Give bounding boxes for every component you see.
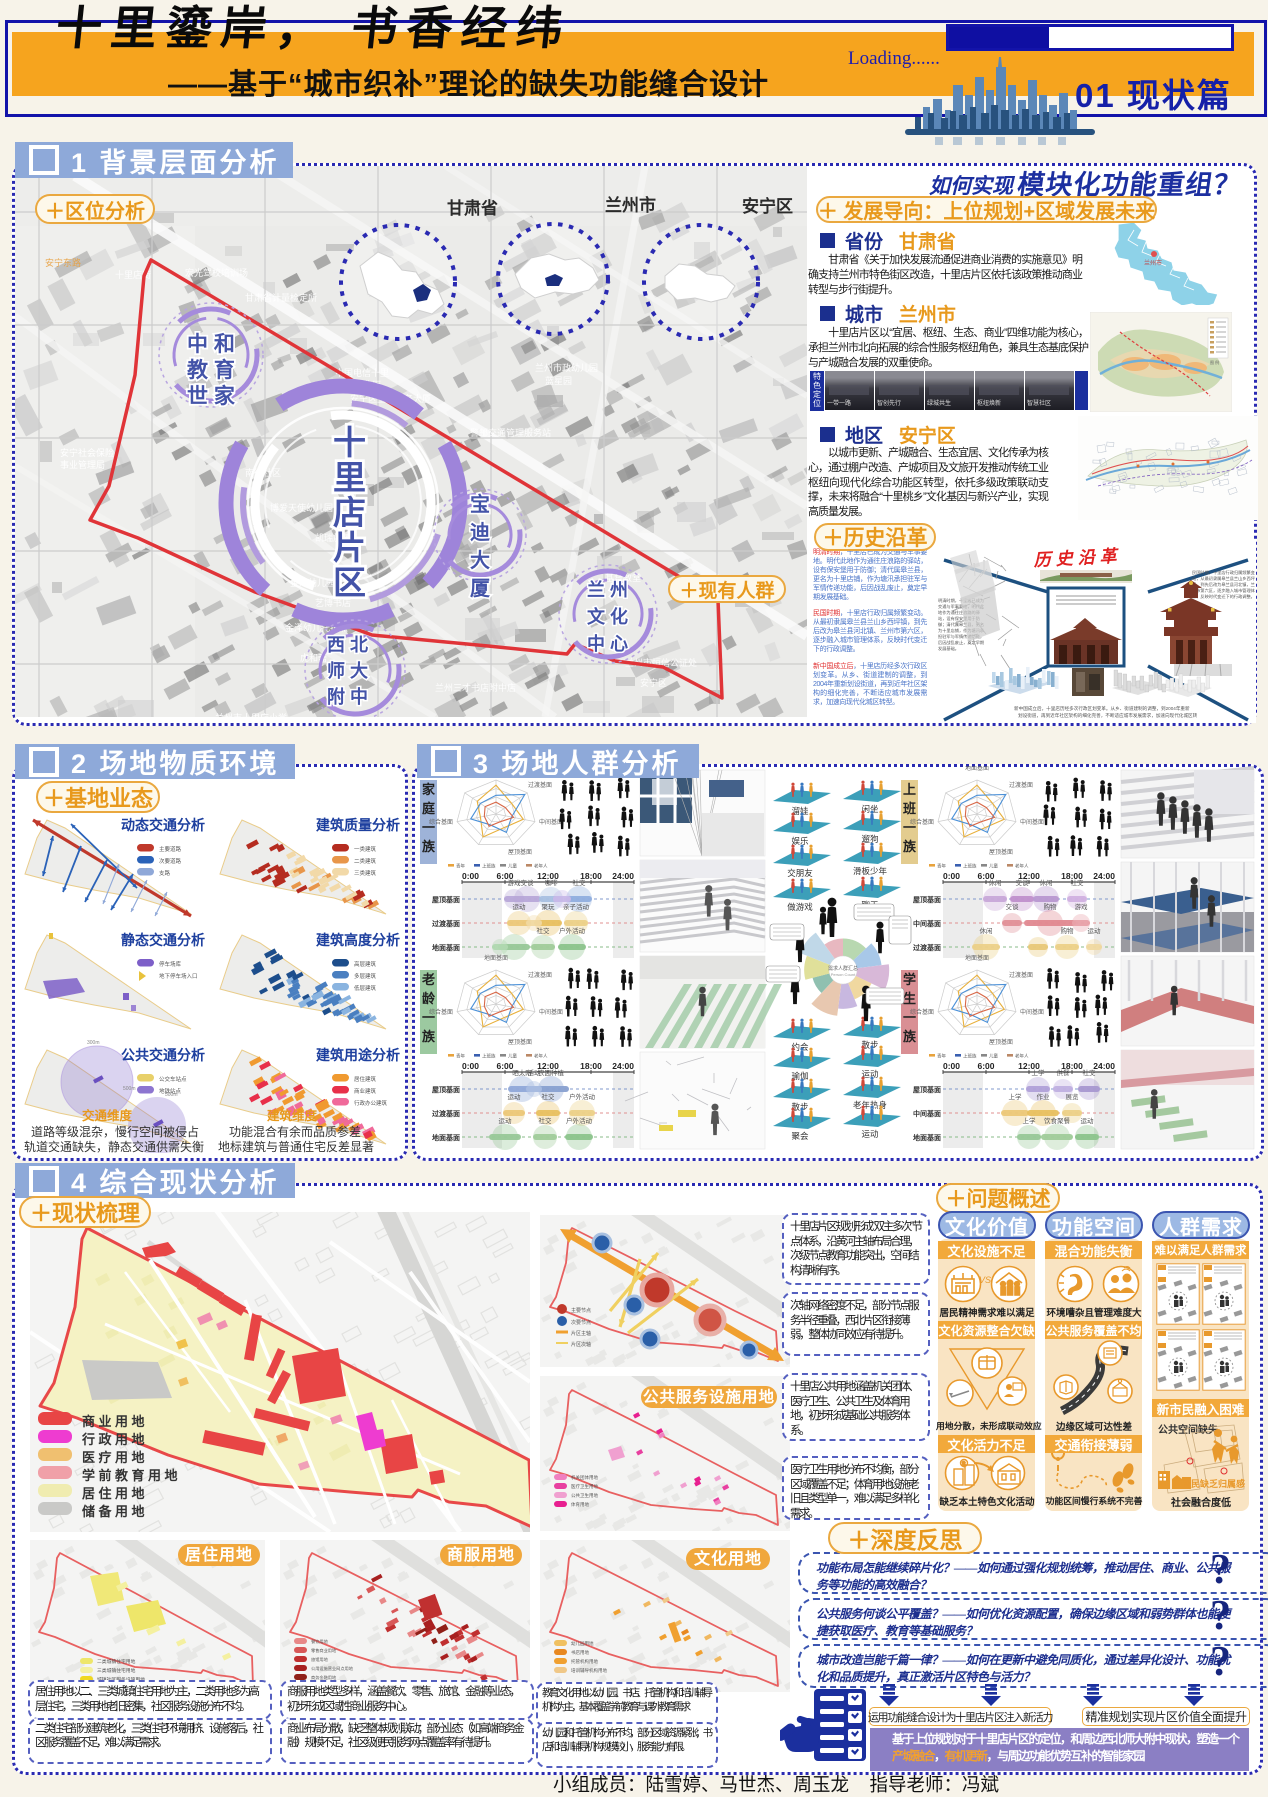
- svg-text:学: 学: [903, 972, 916, 987]
- svg-text:交通维度: 交通维度: [82, 1108, 133, 1123]
- svg-text:社交: 社交: [537, 926, 551, 935]
- svg-text:儿童: 儿童: [508, 863, 517, 870]
- svg-text:老年人: 老年人: [534, 863, 548, 870]
- svg-text:轨道交通缺失，静态交通供需失衡: 轨道交通缺失，静态交通供需失衡: [24, 1139, 204, 1153]
- svg-text:族: 族: [422, 1029, 436, 1044]
- svg-text:建筑维度: 建筑维度: [267, 1108, 318, 1123]
- svg-text:遛狗: 遛狗: [861, 834, 878, 844]
- svg-text:运动: 运动: [1088, 927, 1102, 935]
- svg-text:高层建筑: 高层建筑: [354, 960, 377, 968]
- svg-text:儿童: 儿童: [989, 1053, 998, 1060]
- svg-text:上学: 上学: [1023, 1116, 1037, 1125]
- svg-text:18:00: 18:00: [580, 1061, 602, 1071]
- svg-text:运动: 运动: [513, 903, 527, 911]
- svg-text:老年人: 老年人: [1015, 863, 1029, 870]
- svg-text:庭: 庭: [422, 801, 436, 816]
- svg-text:0:00: 0:00: [943, 1061, 960, 1071]
- svg-text:青年: 青年: [456, 863, 465, 870]
- svg-text:安宁区: 安宁区: [742, 196, 793, 216]
- svg-text:店: 店: [333, 494, 366, 531]
- svg-text:地面基面: 地面基面: [913, 1133, 941, 1142]
- svg-text:6:00: 6:00: [496, 1061, 513, 1071]
- svg-text:中间基面: 中间基面: [913, 919, 941, 928]
- svg-text:屋顶基面: 屋顶基面: [432, 1085, 460, 1094]
- svg-text:户外活动: 户外活动: [566, 1116, 593, 1125]
- svg-text:中间基面: 中间基面: [1020, 818, 1044, 826]
- svg-text:过渡基面: 过渡基面: [528, 971, 552, 979]
- svg-text:餐饮用地: 餐饮用地: [311, 1638, 329, 1645]
- svg-text:6:00: 6:00: [977, 1061, 994, 1071]
- svg-text:警邮交通管理服务站: 警邮交通管理服务站: [470, 427, 551, 438]
- svg-text:公共卫生用地: 公共卫生用地: [571, 1492, 598, 1499]
- svg-text:地铁站点: 地铁站点: [159, 1087, 182, 1095]
- svg-text:西 北: 西 北: [327, 635, 368, 655]
- svg-text:儿童: 儿童: [989, 863, 998, 870]
- svg-text:生: 生: [903, 991, 916, 1006]
- svg-text:社交: 社交: [1071, 878, 1085, 887]
- svg-text:新中国成立后，十里店历经多次行政区划变革。从乡、街道建制的调: 新中国成立后，十里店历经多次行政区划变革。从乡、街道建制的调整，到2004年重新: [1014, 705, 1190, 712]
- svg-text:交谈: 交谈: [1016, 878, 1030, 887]
- svg-text:中间基面: 中间基面: [539, 1008, 563, 1016]
- svg-text:书店用地: 书店用地: [571, 1649, 589, 1656]
- svg-text:动，从最初隶属皋兰县兰山乡西坪: 动，从最初隶属皋兰县兰山乡西坪: [1192, 575, 1255, 582]
- svg-text:地面基面: 地面基面: [432, 1133, 460, 1142]
- svg-text:公共交通分析: 公共交通分析: [121, 1047, 205, 1063]
- svg-text:大: 大: [470, 549, 490, 572]
- svg-text:咖啡: 咖啡: [545, 878, 559, 887]
- svg-text:供餐: 供餐: [1057, 1068, 1071, 1077]
- svg-text:公交车站点: 公交车站点: [159, 1075, 187, 1083]
- svg-text:展览: 展览: [1066, 1092, 1080, 1101]
- svg-text:附 中: 附 中: [327, 686, 368, 707]
- svg-text:地面基面: 地面基面: [432, 943, 460, 952]
- svg-text:居住建筑: 居住建筑: [354, 1075, 377, 1083]
- svg-text:聚玩: 聚玩: [542, 903, 556, 911]
- svg-text:上班族: 上班族: [963, 1053, 977, 1060]
- svg-text:低层建筑: 低层建筑: [354, 984, 377, 992]
- svg-text:屋顶基面: 屋顶基面: [989, 1038, 1013, 1046]
- svg-text:安宁社会保险: 安宁社会保险: [60, 447, 114, 458]
- svg-text:休闲: 休闲: [980, 926, 993, 935]
- svg-text:片区主轴: 片区主轴: [571, 1330, 591, 1337]
- svg-text:24:00: 24:00: [612, 871, 634, 881]
- svg-text:聚会: 聚会: [791, 1131, 809, 1141]
- svg-text:区: 区: [333, 564, 366, 601]
- svg-text:500m: 500m: [123, 1086, 136, 1092]
- svg-text:活动: 活动: [528, 1068, 542, 1077]
- svg-text:综合基面: 综合基面: [910, 818, 934, 826]
- svg-text:建筑高度分析: 建筑高度分析: [316, 932, 400, 948]
- svg-text:兰州市: 兰州市: [605, 195, 656, 215]
- svg-text:安宁区: 安宁区: [640, 677, 667, 688]
- svg-text:户外活动: 户外活动: [559, 926, 586, 935]
- svg-text:购物: 购物: [1061, 926, 1075, 935]
- svg-text:户外活动: 户外活动: [569, 1092, 596, 1101]
- svg-text:二类城镇住宅用地: 二类城镇住宅用地: [97, 1658, 136, 1665]
- svg-text:培训辅导机构用地: 培训辅导机构用地: [571, 1667, 607, 1674]
- svg-text:过渡基面: 过渡基面: [1009, 971, 1033, 979]
- svg-text:班: 班: [903, 801, 916, 816]
- svg-text:中 心: 中 心: [587, 633, 628, 654]
- svg-text:族: 族: [422, 839, 436, 854]
- svg-text:娱乐: 娱乐: [791, 836, 809, 846]
- svg-text:中间基面: 中间基面: [539, 818, 563, 826]
- svg-text:功能混合有余而品质参差: 功能混合有余而品质参差: [229, 1124, 361, 1139]
- svg-text:厦: 厦: [470, 578, 491, 600]
- svg-text:青年: 青年: [937, 1053, 946, 1060]
- svg-text:上学: 上学: [1032, 1068, 1046, 1077]
- svg-text:一类建筑: 一类建筑: [354, 845, 377, 853]
- svg-text:龄: 龄: [422, 991, 436, 1006]
- svg-text:屋顶基面: 屋顶基面: [432, 895, 460, 904]
- svg-text:300m: 300m: [87, 1040, 100, 1046]
- svg-text:屋顶基面: 屋顶基面: [913, 895, 941, 904]
- svg-text:交朋友: 交朋友: [787, 868, 813, 878]
- svg-text:屋顶基面: 屋顶基面: [508, 1038, 532, 1046]
- svg-text:道路等级混杂，慢行空间被侵占: 道路等级混杂，慢行空间被侵占: [31, 1124, 199, 1139]
- svg-text:社交: 社交: [573, 878, 587, 887]
- svg-text:屋顶基面: 屋顶基面: [989, 848, 1013, 856]
- svg-text:安宁东路: 安宁东路: [45, 257, 81, 268]
- svg-text:世 家: 世 家: [187, 384, 236, 408]
- svg-text:过渡基面: 过渡基面: [528, 781, 552, 789]
- svg-text:综合基面: 综合基面: [429, 818, 453, 826]
- svg-text:师 大: 师 大: [327, 660, 368, 681]
- svg-text:博爱天使幼儿园: 博爱天使幼儿园: [270, 502, 333, 513]
- svg-text:社交: 社交: [542, 1092, 556, 1101]
- svg-text:运动: 运动: [508, 1093, 522, 1101]
- svg-text:综合基面: 综合基面: [429, 1008, 453, 1016]
- svg-text:多层建筑: 多层建筑: [354, 972, 377, 980]
- svg-text:行政办公建筑: 行政办公建筑: [354, 1099, 388, 1107]
- svg-text:蓝星园: 蓝星园: [545, 375, 572, 386]
- svg-text:主要道路: 主要道路: [159, 845, 182, 853]
- svg-text:事业管理局: 事业管理局: [60, 459, 105, 470]
- svg-text:老: 老: [421, 972, 435, 987]
- svg-text:屋顶基面: 屋顶基面: [508, 848, 532, 856]
- svg-text:片: 片: [333, 529, 366, 566]
- svg-text:中间基面: 中间基面: [1020, 1008, 1044, 1016]
- svg-text:文化用地: 文化用地: [694, 1549, 762, 1568]
- svg-text:购物: 购物: [1044, 902, 1058, 911]
- svg-text:三类城镇住宅用地: 三类城镇住宅用地: [97, 1667, 136, 1674]
- svg-text:青年: 青年: [456, 1053, 465, 1060]
- svg-text:过渡基面: 过渡基面: [1009, 781, 1033, 789]
- svg-text:地面基面: 地面基面: [965, 766, 989, 772]
- svg-text:十: 十: [333, 424, 366, 461]
- svg-text:主要节点: 主要节点: [571, 1307, 591, 1314]
- svg-text:老年人: 老年人: [534, 1053, 548, 1060]
- svg-text:运动: 运动: [861, 1129, 879, 1139]
- svg-text:约会: 约会: [791, 1042, 809, 1052]
- svg-text:老年人: 老年人: [1015, 1053, 1029, 1060]
- svg-text:交谈: 交谈: [1006, 902, 1020, 911]
- svg-text:动态交通分析: 动态交通分析: [121, 817, 205, 833]
- svg-text:亲子活动: 亲子活动: [563, 902, 590, 911]
- svg-text:次要道路: 次要道路: [159, 857, 182, 865]
- svg-text:24:00: 24:00: [612, 1061, 634, 1071]
- svg-text:划设街道，再到近年社区架构的细化完善，不断适应城市发展需求，: 划设街道，再到近年社区架构的细化完善，不断适应城市发展需求，加速向现代化城区转: [1018, 712, 1198, 719]
- svg-text:上班族: 上班族: [963, 863, 977, 870]
- svg-text:族: 族: [903, 839, 917, 854]
- svg-text:24:00: 24:00: [1093, 871, 1115, 881]
- svg-text:运动: 运动: [499, 1117, 513, 1125]
- svg-text:交谈: 交谈: [521, 878, 535, 887]
- svg-text:休闲: 休闲: [989, 878, 1002, 887]
- svg-text:商服用地: 商服用地: [447, 1545, 515, 1564]
- svg-text:静态交通分析: 静态交通分析: [121, 932, 205, 948]
- svg-text:民国时期，十里店行政归属频繁变: 民国时期，十里店行政归属频繁变: [1192, 569, 1255, 576]
- svg-text:0:00: 0:00: [462, 871, 479, 881]
- svg-text:需求人群汇总: 需求人群汇总: [828, 965, 858, 972]
- svg-text:屋顶基面: 屋顶基面: [913, 1085, 941, 1094]
- svg-text:三类建筑: 三类建筑: [354, 869, 377, 877]
- svg-text:图 例: 图 例: [1210, 359, 1219, 365]
- svg-text:片区次轴: 片区次轴: [571, 1341, 591, 1348]
- svg-text:宏光驾校培训场: 宏光驾校培训场: [185, 267, 248, 278]
- svg-text:二类建筑: 二类建筑: [354, 857, 377, 865]
- svg-text:农园种植: 农园种植: [538, 1068, 565, 1077]
- svg-text:过渡基面: 过渡基面: [913, 943, 941, 952]
- svg-text:医疗卫生用地: 医疗卫生用地: [571, 1483, 598, 1490]
- svg-text:镇，到先后改为皋兰县河北镇，兰: 镇，到先后改为皋兰县河北镇，兰: [1192, 581, 1255, 588]
- svg-text:旅馆用地: 旅馆用地: [311, 1656, 329, 1663]
- svg-text:公用设施营业网点用地: 公用设施营业网点用地: [311, 1665, 354, 1672]
- svg-text:上学: 上学: [1009, 1092, 1023, 1101]
- svg-text:上班族: 上班族: [482, 863, 496, 870]
- svg-text:休闲: 休闲: [1040, 878, 1053, 887]
- svg-text:停车场库: 停车场库: [159, 960, 182, 968]
- svg-text:建筑质量分析: 建筑质量分析: [316, 817, 400, 833]
- svg-text:州市第六区，逐步融入城市管理体: 州市第六区，逐步融入城市管理体: [1192, 587, 1256, 594]
- svg-text:中间基面: 中间基面: [913, 1109, 941, 1118]
- svg-text:上班族: 上班族: [482, 1053, 496, 1060]
- svg-text:后因战乱废止，奠定早期: 后因战乱废止，奠定早期: [938, 639, 984, 646]
- svg-text:教 育: 教 育: [187, 358, 235, 382]
- svg-text:饮食聚餐: 饮食聚餐: [1044, 1116, 1071, 1125]
- svg-text:儿童: 儿童: [508, 1053, 517, 1060]
- svg-text:兰州三才书店附中店: 兰州三才书店附中店: [435, 682, 516, 693]
- svg-text:做游戏: 做游戏: [787, 902, 813, 912]
- svg-text:青年: 青年: [937, 863, 946, 870]
- svg-text:中 和: 中 和: [187, 333, 235, 356]
- svg-text:宝: 宝: [470, 492, 490, 516]
- svg-text:地下停车场入口: 地下停车场入口: [159, 972, 198, 980]
- svg-text:上: 上: [903, 782, 916, 797]
- svg-text:散步: 散步: [861, 1040, 878, 1050]
- svg-text:24:00: 24:00: [1093, 1061, 1115, 1071]
- svg-text:托管机构用地: 托管机构用地: [571, 1658, 598, 1665]
- svg-text:族: 族: [903, 1029, 917, 1044]
- svg-text:里: 里: [333, 459, 366, 496]
- svg-text:甘肃省计量检定所: 甘肃省计量检定所: [245, 292, 317, 303]
- svg-text:过渡基面: 过渡基面: [432, 1109, 460, 1118]
- svg-text:地标建筑与普通住宅反差显著: 地标建筑与普通住宅反差显著: [218, 1139, 374, 1153]
- svg-text:社交: 社交: [539, 1116, 553, 1125]
- svg-text:支路: 支路: [159, 869, 171, 877]
- svg-text:社交: 社交: [1083, 1068, 1097, 1077]
- svg-text:作业: 作业: [1037, 1092, 1051, 1101]
- svg-text:0:00: 0:00: [462, 1061, 479, 1071]
- svg-text:公共服务设施用地: 公共服务设施用地: [643, 1387, 775, 1406]
- svg-text:迪: 迪: [470, 521, 490, 544]
- svg-text:商业建筑: 商业建筑: [354, 1087, 377, 1095]
- svg-text:文 化: 文 化: [587, 606, 628, 627]
- svg-text:综合基面: 综合基面: [910, 1008, 934, 1016]
- svg-text:次要节点: 次要节点: [571, 1319, 591, 1326]
- svg-text:零售商业用地: 零售商业用地: [311, 1647, 337, 1654]
- svg-text:兰 州: 兰 州: [587, 579, 628, 600]
- svg-text:过渡基面: 过渡基面: [432, 919, 460, 928]
- svg-text:滑板少年: 滑板少年: [853, 866, 888, 876]
- svg-text:发展基础。: 发展基础。: [938, 645, 959, 652]
- svg-text:游戏: 游戏: [1075, 902, 1089, 911]
- svg-text:0:00: 0:00: [943, 871, 960, 881]
- svg-text:地面基面: 地面基面: [484, 954, 508, 962]
- svg-text:运动: 运动: [1081, 1117, 1095, 1125]
- svg-text:兰州市: 兰州市: [1144, 259, 1162, 267]
- svg-text:建筑用途分析: 建筑用途分析: [316, 1047, 400, 1063]
- svg-text:Person Count: Person Count: [831, 972, 856, 977]
- svg-text:幼儿园用地: 幼儿园用地: [571, 1640, 594, 1647]
- svg-text:兰州市政幼儿园: 兰州市政幼儿园: [535, 362, 598, 373]
- svg-text:系，反映时代变迁下的行政调整。: 系，反映时代变迁下的行政调整。: [1192, 593, 1255, 600]
- svg-text:家: 家: [422, 782, 436, 797]
- svg-text:兰州市十里店小学: 兰州市十里店小学: [215, 712, 287, 717]
- svg-text:游戏: 游戏: [508, 878, 522, 887]
- svg-text:体育用地: 体育用地: [571, 1501, 589, 1508]
- svg-text:地面基面: 地面基面: [965, 954, 989, 962]
- svg-text:机关团体用地: 机关团体用地: [571, 1474, 598, 1481]
- svg-text:散步: 散步: [791, 1102, 808, 1112]
- svg-text:居住用地: 居住用地: [185, 1545, 253, 1564]
- svg-text:甘肃省: 甘肃省: [447, 198, 498, 218]
